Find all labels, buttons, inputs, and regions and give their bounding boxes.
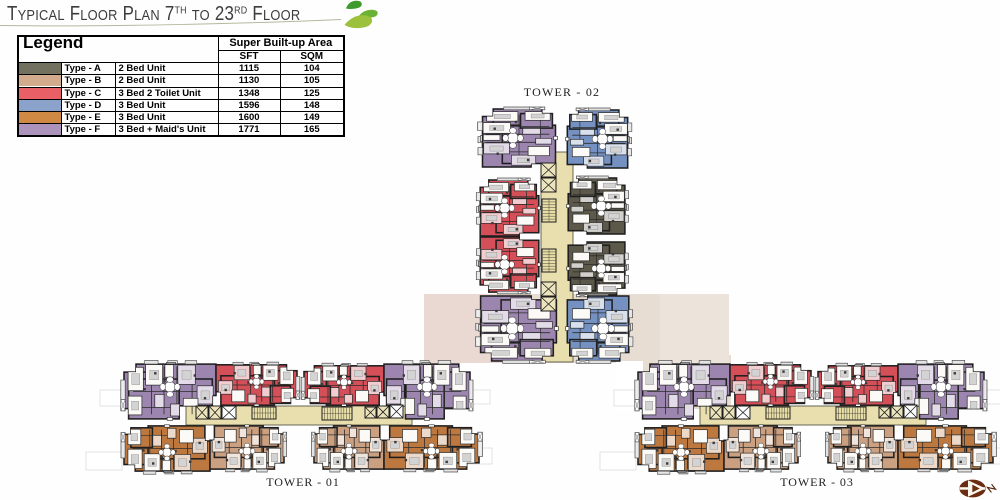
svg-text:TOWER - 01: TOWER - 01 [266, 475, 339, 489]
svg-text:TOWER - 02: TOWER - 02 [524, 85, 600, 99]
svg-text:TOWER - 03: TOWER - 03 [780, 475, 853, 489]
